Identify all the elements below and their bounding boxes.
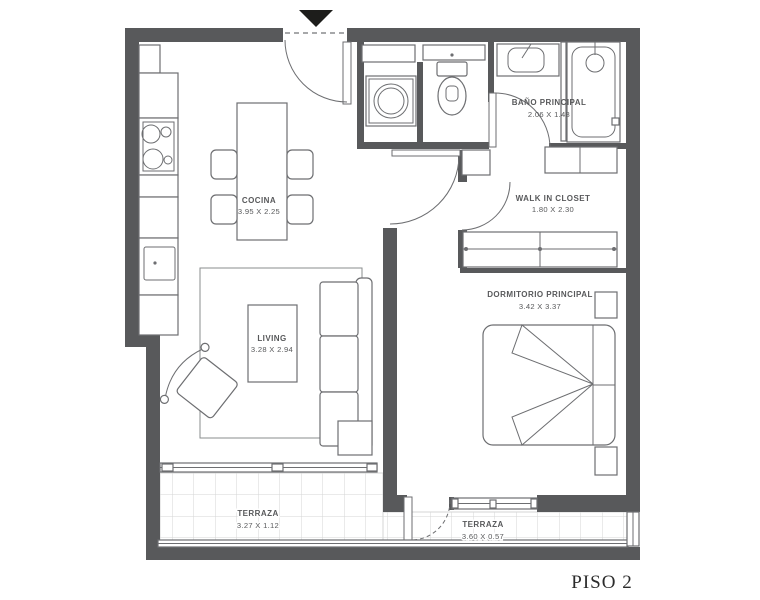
wall-top-left: [125, 28, 283, 42]
room-dims-living: 3.28 X 2.94: [251, 345, 293, 354]
room-label-bano: BAÑO PRINCIPAL: [512, 98, 587, 107]
room-dims-bano: 2.06 X 1.48: [528, 110, 570, 119]
laundry-closet: [362, 45, 416, 126]
hall-door-leaf: [392, 150, 460, 156]
washing-machine-icon: [366, 76, 416, 126]
nightstand: [595, 447, 617, 475]
entrance-door-arc: [285, 40, 347, 102]
room-dims-terraza-living: 3.27 X 1.12: [237, 521, 279, 530]
wall-top-right: [347, 28, 640, 42]
wall-bedroom-south-right: [537, 495, 626, 512]
hall-door-arc: [390, 156, 459, 224]
room-label-living: LIVING: [257, 334, 286, 343]
dining-chair: [287, 195, 313, 224]
cooktop-icon: [139, 118, 178, 175]
closet-rail: [463, 232, 617, 267]
living-terrace-glazing: [160, 463, 377, 472]
bedroom-terrace-glazing: [452, 498, 537, 509]
room-dims-cocina: 3.95 X 2.25: [238, 207, 280, 216]
floor-label: PISO 2: [571, 572, 632, 593]
wall-right: [626, 28, 640, 512]
bath-shelf: [423, 45, 485, 60]
floor-plan: COCINA 3.95 X 2.25 LIVING 3.28 X 2.94 BA…: [0, 0, 760, 600]
entrance-arrow-icon: [299, 10, 333, 27]
wall-closet-bedroom: [460, 268, 626, 273]
terrace-door-leaf: [404, 497, 412, 543]
dining-chair: [211, 195, 237, 224]
bed: [483, 325, 615, 445]
room-label-terraza-dormitorio: TERRAZA: [462, 520, 503, 529]
dining-chair: [211, 150, 237, 179]
wall-tub-partition: [561, 42, 566, 141]
closet-door-arc: [462, 182, 510, 230]
nightstand: [595, 292, 617, 318]
entrance-door-leaf: [343, 42, 351, 104]
bathtub-icon: [567, 42, 620, 142]
room-dims-dormitorio: 3.42 X 3.37: [519, 302, 561, 311]
coffee-table: [248, 305, 297, 382]
kitchen-sink-icon: [139, 238, 178, 295]
room-label-closet: WALK IN CLOSET: [516, 194, 591, 203]
wall-interior-main: [383, 228, 397, 512]
wall-bath-south-west: [357, 142, 489, 149]
wall-bottom: [146, 547, 640, 560]
toilet-icon: [437, 53, 467, 115]
bathroom-vanity-icon: [497, 44, 559, 76]
room-label-dormitorio: DORMITORIO PRINCIPAL: [487, 290, 593, 299]
wall-left-lower: [146, 333, 160, 560]
dining-table: [211, 103, 313, 240]
kitchen-counter: [139, 45, 178, 335]
wall-laundry-east: [417, 62, 423, 142]
side-table: [338, 421, 372, 455]
room-label-cocina: COCINA: [242, 196, 276, 205]
room-label-terraza-living: TERRAZA: [237, 509, 278, 518]
room-dims-terraza-dormitorio: 3.60 X 0.57: [462, 532, 504, 541]
wall-left-upper: [125, 28, 139, 347]
closet-cabinets: [462, 147, 617, 175]
bathroom-door-leaf: [489, 93, 496, 147]
room-dims-closet: 1.80 X 2.30: [532, 205, 574, 214]
dining-chair: [287, 150, 313, 179]
